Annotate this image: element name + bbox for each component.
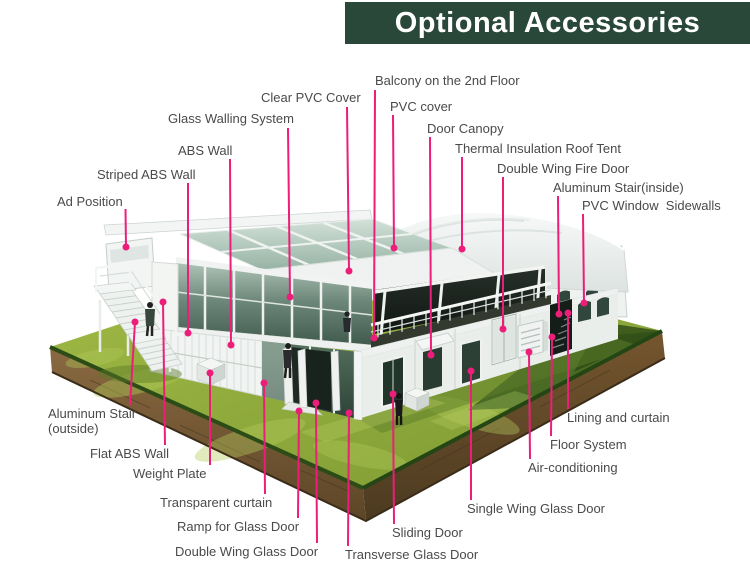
callout-pvc-cover: PVC cover <box>390 100 452 115</box>
callout-aluminum-stair-outside: Aluminum Stair (outside) <box>48 407 136 436</box>
arched-window-2 <box>597 297 609 317</box>
callout-flat-abs-wall: Flat ABS Wall <box>90 447 169 462</box>
callout-aluminum-stair-inside: Aluminum Stair(inside) <box>553 181 684 196</box>
callout-weight-plate: Weight Plate <box>133 467 206 482</box>
callout-striped-abs-wall: Striped ABS Wall <box>97 168 196 183</box>
callout-balcony-2nd-floor: Balcony on the 2nd Floor <box>375 74 520 89</box>
callout-air-conditioning: Air-conditioning <box>528 461 618 476</box>
callout-floor-system: Floor System <box>550 438 627 453</box>
callout-double-wing-glass-door: Double Wing Glass Door <box>175 545 318 560</box>
callout-pvc-window-sidewalls: PVC Window Sidewalls <box>582 199 721 214</box>
callout-ad-position: Ad Position <box>57 195 123 210</box>
callout-sliding-door: Sliding Door <box>392 526 463 541</box>
callout-ramp-for-glass-door: Ramp for Glass Door <box>177 520 299 535</box>
callout-lining-and-curtain: Lining and curtain <box>567 411 670 426</box>
callout-transverse-glass-door: Transverse Glass Door <box>345 548 478 563</box>
title-banner: Optional Accessories <box>345 2 750 44</box>
transparent-curtain-panel <box>262 341 286 402</box>
callout-clear-pvc-cover: Clear PVC Cover <box>261 91 361 106</box>
callout-double-wing-fire-door: Double Wing Fire Door <box>497 162 629 177</box>
callout-abs-wall: ABS Wall <box>178 144 232 159</box>
corner-post <box>354 351 362 420</box>
page: Optional Accessories Ad Position Striped… <box>0 0 750 584</box>
air-conditioner-unit <box>518 320 548 358</box>
page-title: Optional Accessories <box>345 2 750 44</box>
callout-thermal-insulation-roof-tent: Thermal Insulation Roof Tent <box>455 142 621 157</box>
callout-door-canopy: Door Canopy <box>427 122 504 137</box>
callout-transparent-curtain: Transparent curtain <box>160 496 272 511</box>
callout-glass-walling-system: Glass Walling System <box>168 112 294 127</box>
callout-single-wing-glass-door: Single Wing Glass Door <box>467 502 605 517</box>
